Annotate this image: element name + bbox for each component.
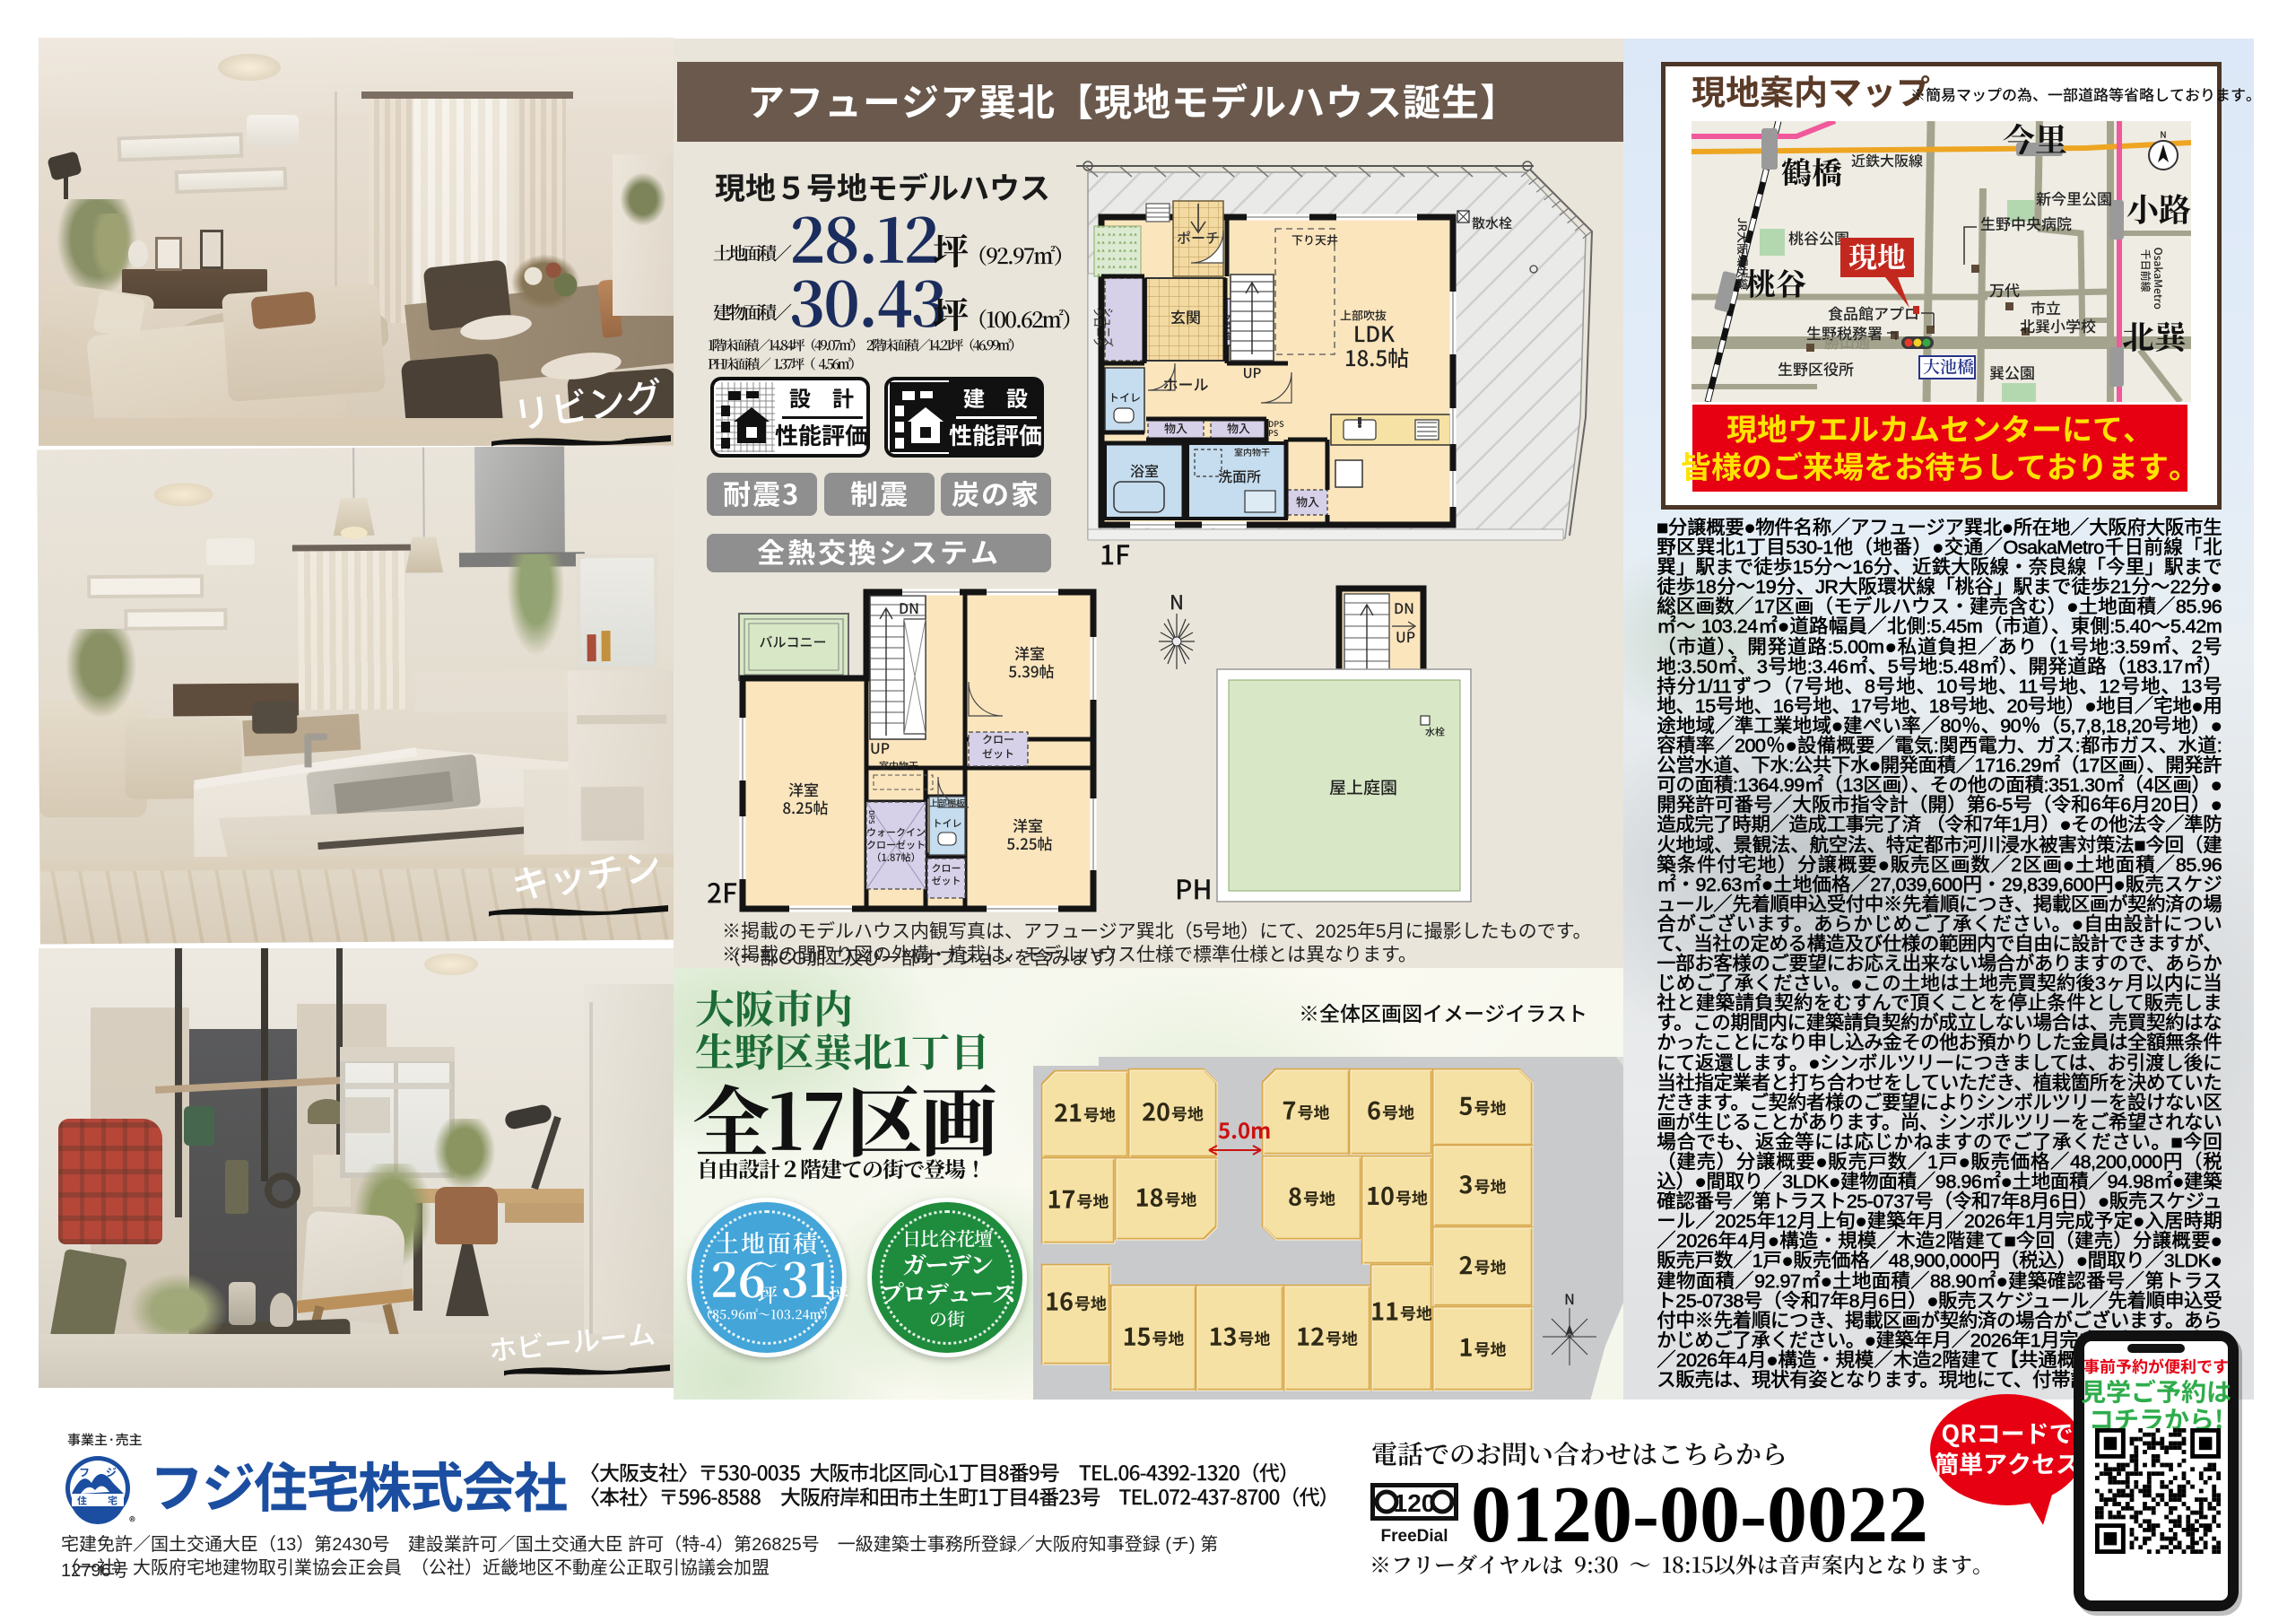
svg-text:FreeDial: FreeDial xyxy=(1381,1527,1448,1545)
svg-text:120: 120 xyxy=(1394,1489,1436,1517)
